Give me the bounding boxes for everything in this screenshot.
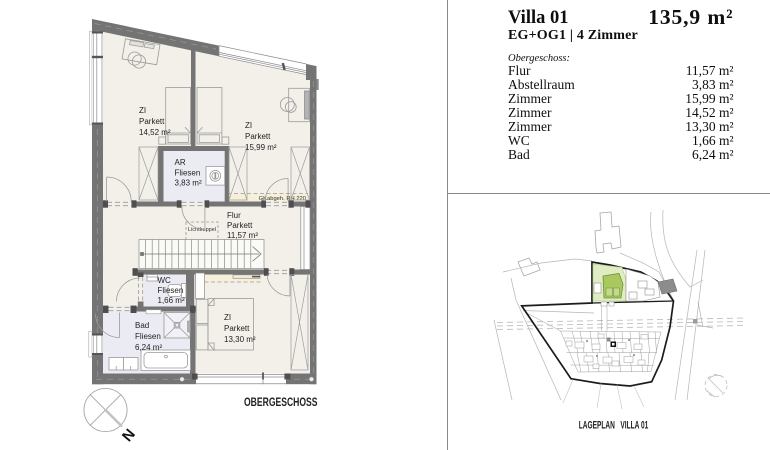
svg-text:Fliesen: Fliesen: [158, 286, 184, 295]
svg-text:AR: AR: [175, 158, 186, 167]
svg-text:LAGEPLAN VILLA 01: LAGEPLAN VILLA 01: [579, 420, 649, 432]
svg-text:ZI: ZI: [224, 313, 231, 322]
svg-text:15,99 m²: 15,99 m²: [245, 143, 277, 152]
svg-text:Fliesen: Fliesen: [135, 332, 161, 341]
svg-text:Bad: Bad: [135, 321, 149, 330]
svg-text:OBERGESCHOSS: OBERGESCHOSS: [244, 395, 318, 409]
svg-text:Parkett: Parkett: [139, 117, 165, 126]
svg-text:WC: WC: [158, 276, 172, 285]
svg-text:1,66 m²: 1,66 m²: [158, 296, 185, 305]
svg-text:14,52 m²: 14,52 m²: [139, 128, 171, 137]
svg-text:Parkett: Parkett: [224, 324, 250, 333]
svg-text:3,83 m²: 3,83 m²: [175, 179, 202, 188]
svg-text:Parkett: Parkett: [245, 132, 271, 141]
svg-text:13,30 m²: 13,30 m²: [224, 335, 256, 344]
svg-text:Flur: Flur: [227, 211, 241, 220]
svg-text:Parkett: Parkett: [227, 221, 253, 230]
svg-text:Lichtkuppel: Lichtkuppel: [188, 227, 216, 233]
svg-text:6,24 m²: 6,24 m²: [135, 343, 162, 352]
svg-text:ZI: ZI: [245, 121, 252, 130]
svg-text:ZI: ZI: [139, 106, 146, 115]
svg-text:Fliesen: Fliesen: [175, 169, 201, 178]
svg-text:N: N: [119, 426, 139, 445]
svg-text:11,57 m²: 11,57 m²: [227, 231, 258, 240]
